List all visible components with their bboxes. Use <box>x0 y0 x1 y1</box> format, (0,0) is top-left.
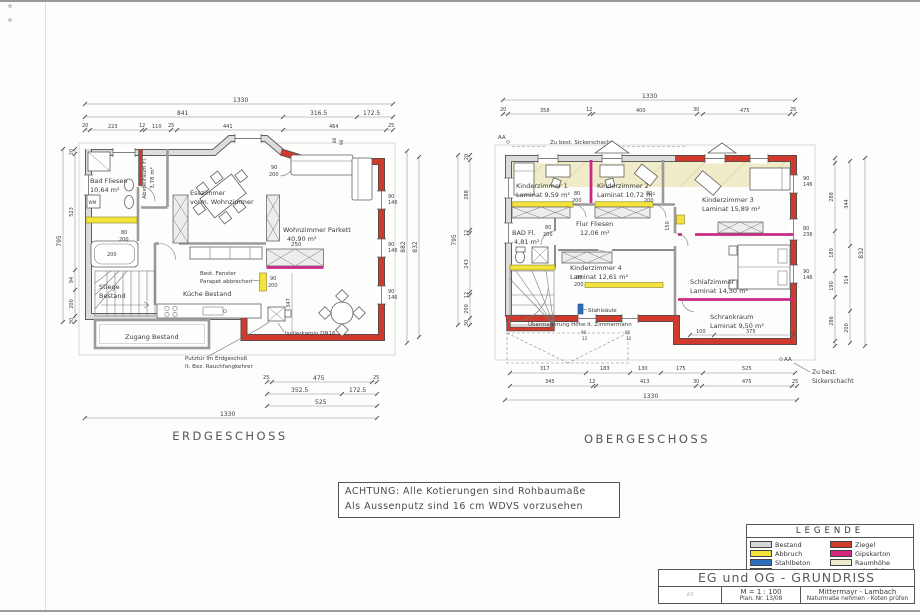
dim-label: 110 <box>152 124 162 130</box>
dim-label: 12 <box>139 123 145 129</box>
room-label-schrankraum: Schrankraum <box>710 313 753 321</box>
door-arc <box>160 244 176 260</box>
door-size-label: 80 <box>121 230 127 236</box>
note-sickerschacht-bottom2: Sickerschacht <box>812 378 854 385</box>
scanned-floor-plan-page: 1330 841 316.5 172.5 20 223 12 110 25 44… <box>0 0 920 613</box>
swatch-rect <box>831 551 852 557</box>
legend-label: Bestand <box>775 541 802 549</box>
door-size-label: 200 <box>119 237 129 243</box>
dim-label: 358 <box>540 108 550 114</box>
legend-item-gipskarton: Gipskarton <box>830 549 910 558</box>
room-area-schrankraum: Laminat 9,50 m² <box>710 322 764 330</box>
dim-label: 286 <box>829 316 835 326</box>
room-area-bad: 4,81 m² <box>514 238 540 246</box>
section-marker: AA <box>784 357 792 363</box>
client-name: Mittermayr - Lambach <box>819 588 897 596</box>
dim-label: 475 <box>742 379 752 385</box>
dim-label: 1330 <box>233 97 248 104</box>
swatch-rect <box>831 542 852 548</box>
window-size-label: 146 <box>388 248 398 254</box>
sofa <box>291 155 353 175</box>
dim-label: 1330 <box>643 393 658 400</box>
dim-label: 12 <box>589 379 595 385</box>
check-note: Naturmaße nehmen - Koten prüfen <box>807 596 908 603</box>
eg-chimney <box>268 307 291 321</box>
title-block: EG und OG - GRUNDRISS A3 M = 1 : 100 Pla… <box>658 569 915 604</box>
dim-label: 344 <box>844 199 850 209</box>
dim-label: 882 <box>400 241 407 253</box>
swatch-stahlbeton <box>750 559 772 566</box>
desk <box>600 165 624 177</box>
legend-label: Stahlbeton <box>775 559 810 567</box>
room-label-flur: Flur Fliesen <box>576 220 613 228</box>
window-size-label: 12 <box>582 336 588 341</box>
window-size-label: 12 <box>626 336 632 341</box>
roof-outline-dashed <box>507 333 628 363</box>
swatch-rect <box>831 560 852 566</box>
dim-label: 130 <box>638 366 648 372</box>
scale-label: M = 1 : 100 <box>741 588 782 596</box>
plan-number: Plan. Nr. 13/08 <box>740 596 783 603</box>
door-size-label: 200 <box>269 172 279 178</box>
format-stamp: A3 <box>659 587 722 603</box>
room-label-esszimmer2: vorm. Wohnzimmer <box>190 198 254 206</box>
dim-label: 1330 <box>642 93 657 100</box>
door-arc <box>653 205 666 218</box>
attention-note-box: ACHTUNG: Alle Kotierungen sind Rohbaumaß… <box>338 482 620 518</box>
dim-label: 20 <box>464 154 470 160</box>
dim-label: 180 <box>829 248 835 258</box>
note-fenster2: Parapet abbrechen <box>200 279 253 285</box>
window-size-label: 146 <box>388 295 398 301</box>
toilet <box>516 251 525 263</box>
dim-label: 832 <box>412 241 419 253</box>
dim-label: 475 <box>740 108 750 114</box>
swatch-bestand <box>750 541 772 548</box>
legend-label: Raumhöhe <box>855 559 890 567</box>
room-area-kinderzimmer3: Laminat 15,89 m² <box>702 205 760 213</box>
room-area-flur: 12,06 m² <box>580 229 610 237</box>
note-sickerschacht-bottom: Zu best. <box>812 369 837 376</box>
toilet <box>125 196 134 209</box>
dim-label: 413 <box>640 379 650 385</box>
og-dims-left: 795 20 288 12 243 12 200 30 <box>451 153 472 327</box>
dim-label: 30 <box>693 107 699 113</box>
demolition-wall <box>512 202 573 207</box>
demolition-wall <box>260 273 267 291</box>
swatch-rect <box>751 551 772 557</box>
dim-label: 150 <box>665 221 671 231</box>
note-kamin: Isolierkamin DN16 <box>285 331 336 337</box>
demolition-wall <box>585 283 663 288</box>
sofa <box>352 158 372 200</box>
room-label-schlafzimmer: Schlafzimmer <box>690 278 735 286</box>
swatch-raumhoehe <box>830 559 852 566</box>
legend-label: Gipskarton <box>855 550 890 558</box>
attention-line2: Als Aussenputz sind 16 cm WDVS vorzusehe… <box>345 499 613 514</box>
room-area-bad: 10,64 m² <box>90 186 120 194</box>
washing-machine-label: WM <box>89 200 97 205</box>
legend-label: Abbruch <box>775 550 802 558</box>
roof-hatch <box>708 143 736 153</box>
dim-label: 441 <box>223 124 233 130</box>
room-area-schlafzimmer: Laminat 14,30 m² <box>690 287 748 295</box>
room-label-zugang: Zugang Bestand <box>125 333 179 341</box>
dim-label: 400 <box>636 108 646 114</box>
note-sickerschacht-top: Zu best. Sickerschacht <box>550 140 613 146</box>
room-area-abstellraum: 3,78 m² <box>149 167 156 189</box>
og-dims-bottom: 317 183 130 175 525 345 12 413 30 475 25… <box>503 366 799 402</box>
format-label: A3 <box>687 592 694 598</box>
swatch-rect <box>751 542 772 548</box>
erdgeschoss-plan: 1330 841 316.5 172.5 20 223 12 110 25 44… <box>55 83 455 453</box>
window-size-label: 236 <box>803 232 813 238</box>
dim-label: 523 <box>69 207 75 217</box>
dim-label: 832 <box>858 247 865 259</box>
legend-item-ziegel: Ziegel <box>830 540 910 549</box>
dim-label: 525 <box>315 399 327 406</box>
bathtub-dim: 200 <box>107 252 117 258</box>
demolition-wall <box>86 217 137 223</box>
dim-label: 464 <box>329 124 339 130</box>
attention-line1: ACHTUNG: Alle Kotierungen sind Rohbaumaß… <box>345 484 613 499</box>
door-size-label: 200 <box>572 198 582 204</box>
note-stahlsaeule: Stahlsäule <box>588 308 617 314</box>
legend-item-raumhoehe: Raumhöhe <box>830 558 910 567</box>
door-arc <box>682 300 694 312</box>
room-area-kinderzimmer4: Laminat 12,61 m² <box>570 273 628 281</box>
note-fenster: Best. Fenster <box>200 271 237 277</box>
dim-label: 30 <box>464 320 470 326</box>
dim-label: 223 <box>108 124 118 130</box>
dim-label: 200 <box>69 299 75 309</box>
room-label-bad: BAD Fl. <box>512 229 536 237</box>
room-label-stiege: Stiege <box>99 283 120 291</box>
dim-label: 175 <box>676 366 686 372</box>
dim-label: 25 <box>168 123 174 129</box>
dim-label: 347 <box>286 298 292 308</box>
dim-label: 200 <box>844 323 850 333</box>
scan-fold-line <box>45 2 46 610</box>
steel-column <box>578 304 583 314</box>
window-size-label: 90 <box>581 330 587 335</box>
legend-item-bestand: Bestand <box>750 540 830 549</box>
dim-label: 288 <box>464 190 470 200</box>
door-size-label: 80 <box>545 225 551 231</box>
room-label-kinderzimmer1: Kinderzimmer 1 <box>516 182 568 190</box>
room-label-bad: Bad Fliesen <box>90 177 128 185</box>
room-area-kinderzimmer2: Laminat 10,72 m² <box>597 191 655 199</box>
note-putztuer: Putztür im Erdgeschoß <box>185 356 248 362</box>
og-dims-right: 90 146 80 236 90 146 288 180 190 286 344… <box>803 156 867 348</box>
dim-label: 25 <box>388 123 394 129</box>
punch-mark <box>8 4 12 8</box>
dim-label: 25 <box>790 107 796 113</box>
legend-label: Ziegel <box>855 541 875 549</box>
room-label-kueche: Küche Bestand <box>183 290 231 298</box>
dim-label: 525 <box>742 366 752 372</box>
room-label-abstellraum: Abstellraum Fl. <box>142 157 148 199</box>
dim-label: 288 <box>829 192 835 202</box>
room-area-kinderzimmer1: Laminat 9,59 m² <box>516 191 570 199</box>
room-label-kinderzimmer2: Kinderzimmer 2 <box>597 182 649 190</box>
scan-top-edge <box>0 0 920 2</box>
obergeschoss-plan: 1330 20 358 12 400 30 475 25 795 20 288 … <box>450 83 880 453</box>
dim-label: 345 <box>545 379 555 385</box>
room-area-wohnzimmer: 40,90 m² <box>287 235 317 243</box>
room-label-esszimmer: Esszimmer <box>190 189 226 197</box>
dim-label: 20 <box>500 107 506 113</box>
dim-label: 172.5 <box>363 110 380 117</box>
dim-label: 90 <box>339 139 344 145</box>
scale-cell: M = 1 : 100 Plan. Nr. 13/08 <box>722 587 801 603</box>
dim-label: 243 <box>464 259 470 269</box>
dim-label: 316.5 <box>310 110 327 117</box>
dim-label: 352.5 <box>291 387 308 394</box>
dim-label: 190 <box>829 281 835 291</box>
eg-dims-right: 882 832 90 146 90 146 90 146 <box>388 149 421 345</box>
eg-livingroom-furniture <box>291 155 372 336</box>
desk <box>546 165 570 177</box>
dim-label: 475 <box>313 375 325 382</box>
demolition-wall <box>677 215 685 224</box>
dim-label: 12 <box>464 292 470 298</box>
dim-label: 1330 <box>220 411 235 418</box>
dim-label: 94 <box>69 277 75 283</box>
door-size-label: 200 <box>574 282 584 288</box>
bed <box>750 168 790 190</box>
room-label-stiege2: Bestand <box>99 292 126 300</box>
dim-label: 841 <box>177 110 189 117</box>
punch-mark <box>8 18 12 22</box>
dim-label: 172.5 <box>349 387 366 394</box>
swatch-abbruch <box>750 550 772 557</box>
og-dims-top: 1330 20 358 12 400 30 475 25 <box>500 93 797 116</box>
round-table <box>331 302 353 324</box>
section-marker: AA <box>498 135 506 141</box>
dim-label: 20 <box>69 149 75 155</box>
legend-title: LEGENDE <box>747 525 913 538</box>
dim-label: 100 <box>696 329 706 335</box>
legend-item-abbruch: Abbruch <box>750 549 830 558</box>
dim-label: 25 <box>792 379 798 385</box>
door-size-label: 80 <box>574 191 580 197</box>
dim-label: 30 <box>69 318 75 324</box>
eg-dims-bottom: 25 475 25 352.5 172.5 525 1330 <box>83 375 379 420</box>
dim-label: 80 <box>332 137 337 143</box>
swatch-gipskarton <box>830 550 852 557</box>
demolition-wall <box>510 265 555 270</box>
door-size-label: 90 <box>271 165 277 171</box>
swatch-rect <box>751 560 772 566</box>
og-title: OBERGESCHOSS <box>584 432 710 446</box>
note-putztuer2: lt. Bez. Rauchfangkehrer <box>185 364 253 370</box>
dim-label: 12 <box>586 107 592 113</box>
dim-label: 30 <box>693 379 699 385</box>
room-label-kinderzimmer4: Kinderzimmer 4 <box>570 264 622 272</box>
door-arc <box>675 233 688 246</box>
dim-label: 314 <box>844 275 850 285</box>
dim-label: 795 <box>451 234 458 246</box>
door-size-label: 200 <box>268 283 278 289</box>
dim-label: 200 <box>464 304 470 314</box>
dim-label: 20 <box>82 123 88 129</box>
window-size-label: 146 <box>388 200 398 206</box>
scan-bottom-edge <box>0 610 920 612</box>
door-size-label: 200 <box>543 232 553 238</box>
dim-label: 12 <box>464 230 470 236</box>
legend-item-stahlbeton: Stahlbeton <box>750 558 830 567</box>
dim-label: 317 <box>540 366 550 372</box>
eg-bath-fixtures: WM 200 <box>87 152 138 267</box>
client-cell: Mittermayr - Lambach Naturmaße nehmen - … <box>801 587 914 603</box>
room-label-kinderzimmer3: Kinderzimmer 3 <box>702 196 754 204</box>
note-uebermauerung: Übermauerung Höhe lt. Zimmermann <box>528 321 632 328</box>
eg-dims-left: 795 20 523 94 200 30 <box>56 147 77 324</box>
swatch-ziegel <box>830 541 852 548</box>
dim-label: 25 <box>373 375 379 381</box>
dim-label: 183 <box>600 366 610 372</box>
drawing-title: EG und OG - GRUNDRISS <box>659 570 914 587</box>
eg-dims-top: 1330 841 316.5 172.5 20 223 12 110 25 44… <box>82 97 395 132</box>
dim-label: 25 <box>263 375 269 381</box>
door-size-label: 90 <box>270 276 276 282</box>
window-size-label: 146 <box>803 275 813 281</box>
eg-title: ERDGESCHOSS <box>172 429 287 443</box>
dim-label: 795 <box>56 235 63 247</box>
room-label-wohnzimmer: Wohnzimmer Parkett <box>283 226 351 234</box>
door-arc <box>573 205 586 218</box>
window-size-label: 146 <box>803 182 813 188</box>
